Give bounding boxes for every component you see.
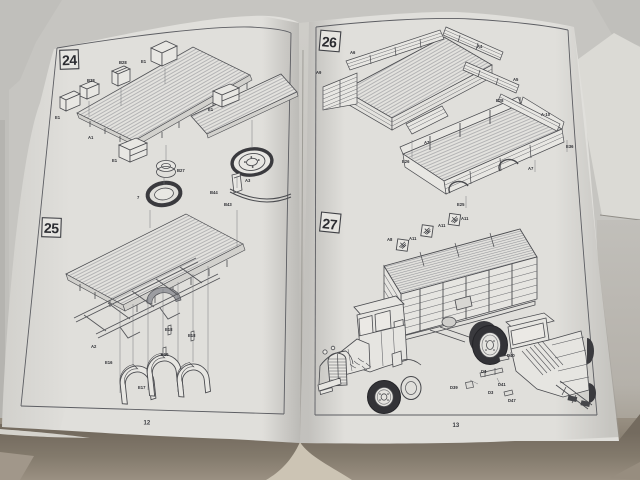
svg-text:E17: E17 (138, 385, 146, 390)
svg-text:A11: A11 (438, 223, 446, 228)
svg-text:A2: A2 (91, 344, 97, 349)
svg-text:26: 26 (321, 33, 338, 50)
svg-text:A6: A6 (350, 50, 356, 55)
svg-text:E36: E36 (566, 144, 574, 149)
svg-text:E1: E1 (55, 115, 61, 120)
svg-text:A9: A9 (316, 70, 322, 75)
svg-text:D3: D3 (488, 390, 494, 395)
svg-text:D39: D39 (450, 385, 458, 390)
svg-text:E26: E26 (402, 159, 410, 164)
svg-text:25: 25 (44, 220, 60, 237)
svg-text:D40: D40 (507, 353, 515, 358)
svg-text:E18: E18 (188, 333, 196, 338)
svg-text:A7: A7 (528, 166, 534, 171)
svg-text:A8: A8 (387, 237, 393, 242)
svg-text:13: 13 (453, 423, 460, 429)
svg-text:D41: D41 (498, 382, 506, 387)
svg-text:A5: A5 (513, 77, 519, 82)
svg-text:E28: E28 (496, 98, 504, 103)
svg-text:E1: E1 (112, 158, 118, 163)
svg-text:B43: B43 (224, 202, 232, 207)
svg-text:D4: D4 (481, 369, 487, 374)
svg-text:D47: D47 (508, 398, 516, 403)
svg-text:24: 24 (62, 52, 78, 69)
svg-text:A1: A1 (88, 135, 94, 140)
svg-text:E16: E16 (105, 360, 113, 365)
svg-text:A3: A3 (245, 178, 251, 183)
svg-text:B27: B27 (177, 168, 185, 173)
svg-text:E1: E1 (141, 59, 147, 64)
svg-text:E1: E1 (208, 107, 214, 112)
svg-text:B38: B38 (87, 78, 95, 83)
svg-text:A4: A4 (477, 44, 483, 49)
svg-text:B28: B28 (119, 60, 127, 65)
svg-text:A11: A11 (461, 216, 469, 221)
svg-text:A-10: A-10 (541, 112, 551, 117)
svg-text:12: 12 (144, 421, 151, 427)
svg-text:E25: E25 (457, 202, 465, 207)
svg-text:A11: A11 (409, 236, 417, 241)
svg-text:E18: E18 (165, 327, 173, 332)
svg-text:A7: A7 (424, 140, 430, 145)
svg-text:B44: B44 (210, 190, 218, 195)
svg-text:27: 27 (322, 215, 339, 233)
svg-text:E19: E19 (161, 352, 169, 357)
